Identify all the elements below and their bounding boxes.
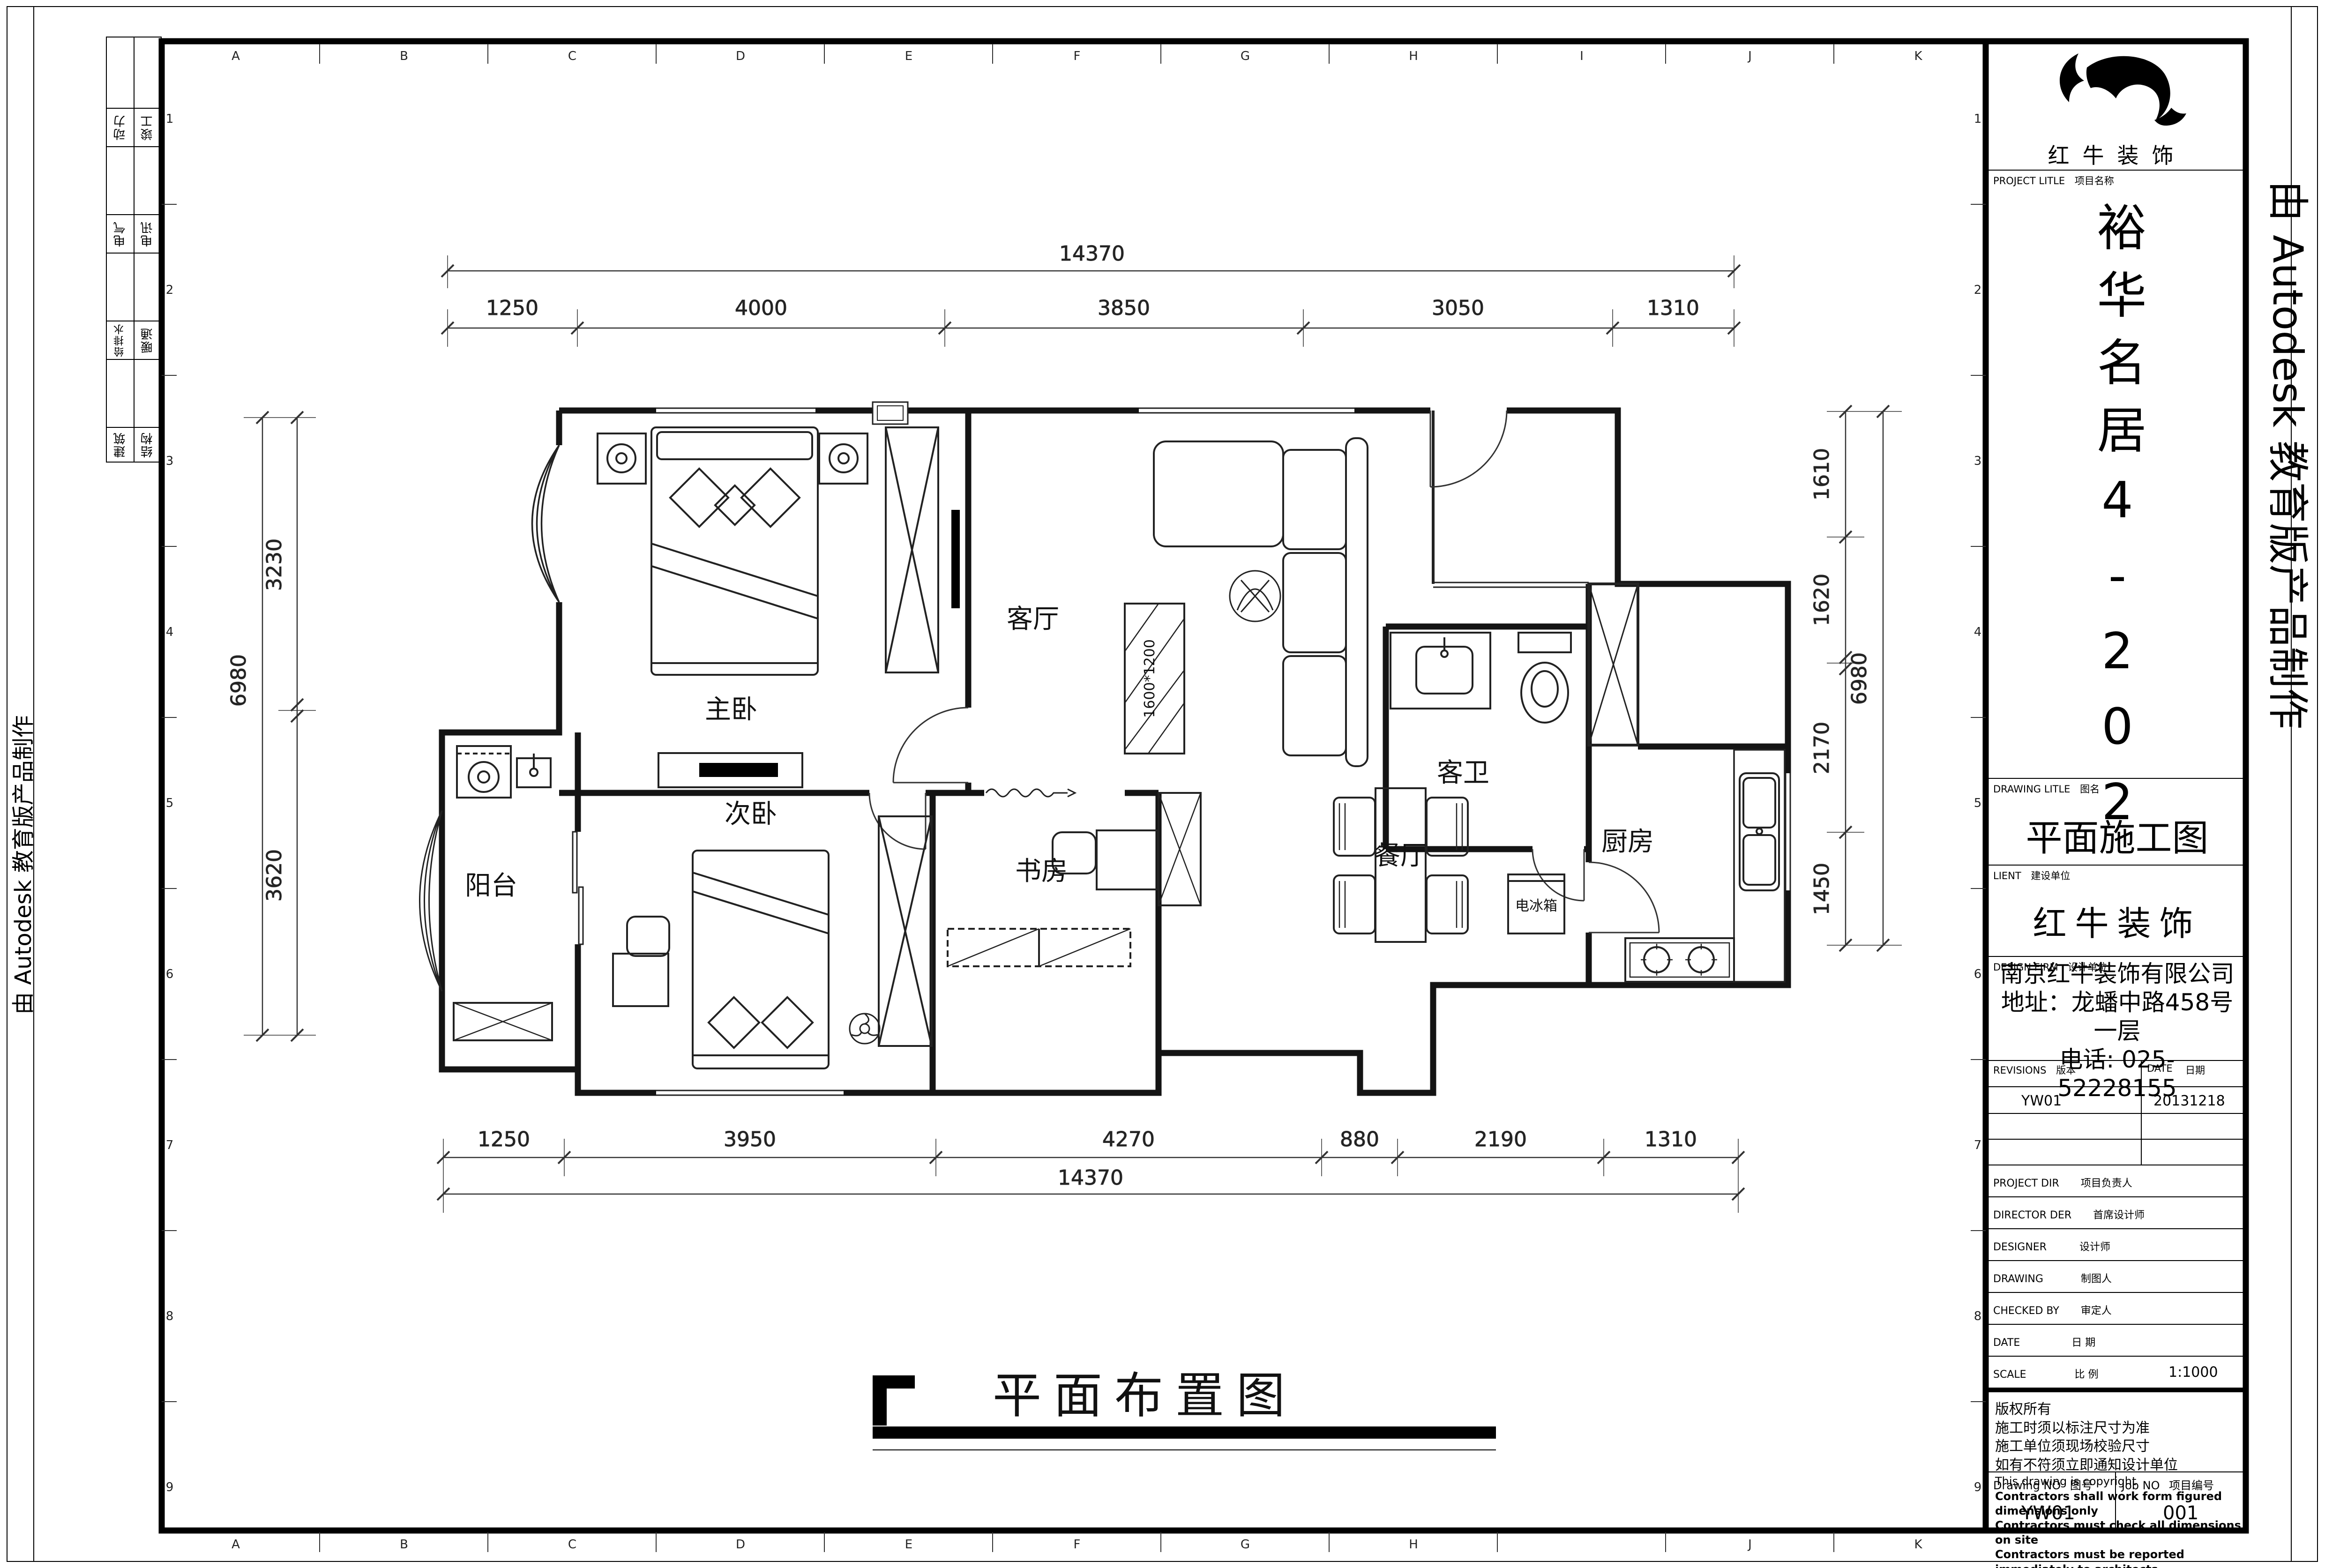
furniture	[454, 427, 1785, 1068]
grid-letter: B	[400, 1538, 408, 1552]
drawing-title: 平面施工图	[1989, 809, 2246, 861]
svg-text:3230: 3230	[262, 538, 286, 591]
room-label-balcony: 阳台	[465, 871, 517, 901]
wall-tv	[951, 510, 960, 608]
second-bed	[693, 851, 829, 1068]
svg-text:3050: 3050	[1432, 296, 1484, 320]
room-label-living: 客厅	[1007, 604, 1059, 635]
grid-number: 3	[166, 454, 174, 468]
grid-number: 8	[1974, 1309, 1982, 1323]
balcony-cabinet	[454, 1003, 552, 1040]
grid-letter: G	[1241, 1538, 1250, 1552]
grid-number: 6	[1974, 967, 1982, 981]
svg-text:1610: 1610	[1810, 448, 1834, 500]
grid-number: 7	[166, 1138, 174, 1152]
svg-text:1310: 1310	[1647, 296, 1699, 320]
brand-logo	[2040, 50, 2195, 139]
sheet-title-text: 平面布置图	[993, 1367, 1297, 1424]
grid-number: 3	[1974, 454, 1982, 468]
study-desk	[1053, 830, 1158, 889]
grid-number: 7	[1974, 1138, 1982, 1152]
grid-reference: A B C D E F G H I J K A B C D E F G H J …	[162, 44, 1986, 1552]
discipline-table: 动力 竣工 电气 电讯 给排水 暖通 建筑 结构	[106, 37, 162, 463]
company-name: 红牛装饰	[1989, 139, 2246, 170]
firm-phone: 电话: 025-52228155	[2000, 1045, 2235, 1103]
grid-number: 5	[1974, 796, 1982, 810]
discipline-label: 暖通	[139, 327, 156, 353]
svg-text:4270: 4270	[1102, 1127, 1155, 1151]
discipline-label: 竣工	[139, 114, 156, 141]
dimension-top: 14370 1250 4000 3850 3050 1310	[441, 242, 1740, 347]
second-wardrobe	[879, 816, 932, 1046]
room-label-dining: 餐厅	[1374, 841, 1427, 871]
discipline-label: 给排水	[112, 323, 127, 357]
autodesk-watermark-left: 由 Autodesk 教育版产品制作	[5, 593, 37, 1015]
discipline-label: 建筑	[112, 432, 129, 458]
grid-number: 4	[166, 625, 174, 639]
grid-letter: B	[400, 49, 408, 63]
copyright-line: 版权所有	[1995, 1400, 2246, 1419]
grid-letter: K	[1914, 49, 1922, 63]
row-label-en: CHECKED BY	[1993, 1305, 2059, 1317]
windows-and-thin-walls	[420, 402, 1792, 1096]
copyright-line: Contractors must be reported immediately…	[1995, 1547, 2246, 1568]
client-label-cn: 建设单位	[2031, 870, 2070, 881]
balcony-sink	[517, 754, 551, 787]
discipline-label: 电气	[112, 221, 129, 247]
grid-number: 2	[1974, 283, 1982, 297]
grid-number: 4	[1974, 625, 1982, 639]
row-label-cn: 日 期	[2071, 1337, 2095, 1349]
project-label-en: PROJECT LITLE	[1993, 175, 2065, 187]
grid-number: 2	[166, 283, 174, 297]
grid-letter: C	[568, 49, 576, 63]
fan	[850, 1014, 880, 1044]
drawing-no-label-en: Drawing NO	[1993, 1479, 2061, 1492]
grid-letter: F	[1074, 1538, 1081, 1552]
svg-text:3950: 3950	[724, 1127, 776, 1151]
grid-letter: C	[568, 1538, 576, 1552]
grid-number: 8	[166, 1309, 174, 1323]
project-name: 裕华名居4-202	[2093, 202, 2142, 849]
grid-letter: A	[232, 49, 240, 63]
row-label-en: DESIGNER	[1993, 1241, 2047, 1253]
row-label-en: DIRECTOR DER	[1993, 1210, 2071, 1221]
dimension-bottom: 1250 3950 4270 880 2190 1310 14370	[437, 1127, 1744, 1213]
grid-letter: J	[1747, 49, 1752, 63]
toilet	[1518, 633, 1571, 723]
master-bed	[651, 427, 818, 675]
sheet-title: 平面布置图	[873, 1367, 1496, 1450]
discipline-label: 结构	[139, 432, 156, 458]
client-name: 红牛装饰	[1989, 896, 2246, 945]
svg-text:6980: 6980	[227, 654, 251, 707]
job-no-label-cn: 项目编号	[2169, 1479, 2214, 1492]
grid-letter: G	[1241, 49, 1250, 63]
svg-text:1250: 1250	[486, 296, 538, 320]
drawing-canvas: A B C D E F G H I J K A B C D E F G H J …	[0, 0, 2325, 1568]
grid-number: 9	[166, 1480, 174, 1494]
row-label-cn: 设计师	[2079, 1241, 2110, 1253]
title-block: 红牛装饰 PROJECT LITLE 项目名称 裕华名居4-202 DRAWIN…	[1989, 47, 2246, 1531]
grid-number: 6	[166, 967, 174, 981]
bath-vanity	[1391, 633, 1490, 709]
copyright-line: 施工时须以标注尺寸为准	[1995, 1419, 2246, 1438]
grid-letter: J	[1747, 1538, 1752, 1552]
svg-text:3620: 3620	[262, 849, 286, 902]
svg-text:3850: 3850	[1098, 296, 1150, 320]
discipline-label: 动力	[112, 114, 129, 141]
break-line	[986, 789, 1075, 797]
study-cabinet	[948, 929, 1130, 966]
kitchen-sink	[1740, 773, 1779, 890]
drawing-no-label-cn: 图号	[2070, 1479, 2093, 1492]
svg-text:1310: 1310	[1645, 1127, 1697, 1151]
hall-cabinet	[1159, 793, 1201, 905]
room-label-master: 主卧	[705, 694, 757, 725]
washing-machine	[457, 746, 511, 798]
grid-letter: A	[232, 1538, 240, 1552]
grid-letter: K	[1914, 1538, 1922, 1552]
row-label-en: DRAWING	[1993, 1273, 2043, 1285]
svg-text:1450: 1450	[1810, 863, 1834, 915]
row-label-en: DATE	[1993, 1337, 2020, 1349]
grid-letter: D	[736, 1538, 745, 1552]
row-label-cn: 制图人	[2081, 1273, 2112, 1285]
stove	[1625, 938, 1734, 982]
svg-text:14370: 14370	[1059, 242, 1125, 266]
grid-letter: F	[1074, 49, 1081, 63]
svg-text:1620: 1620	[1810, 574, 1834, 626]
floor-plan-walls	[442, 411, 1788, 1093]
row-label-cn: 审定人	[2081, 1305, 2112, 1317]
grid-letter: H	[1409, 1538, 1418, 1552]
svg-text:14370: 14370	[1058, 1166, 1123, 1190]
grid-number: 1	[166, 112, 174, 126]
kitchen-counter	[1734, 750, 1785, 982]
tv-cabinet	[658, 753, 802, 787]
sheet-frame	[7, 7, 2318, 1561]
cad-sheet: A B C D E F G H I J K A B C D E F G H J …	[0, 0, 2325, 1568]
room-label-kitchen: 厨房	[1601, 827, 1654, 857]
project-label-cn: 项目名称	[2075, 175, 2114, 187]
scale-value: 1:1000	[2168, 1364, 2218, 1381]
svg-text:4000: 4000	[735, 296, 787, 320]
grid-letter: E	[905, 49, 912, 63]
job-no-label-en: Job NO	[2122, 1479, 2160, 1492]
second-desk	[613, 917, 669, 1006]
firm-address: 地址：龙蟠中路458号一层	[2000, 988, 2235, 1045]
row-label-cn: 比 例	[2075, 1369, 2099, 1381]
svg-text:2190: 2190	[1474, 1127, 1527, 1151]
firm-name: 南京红牛装饰有限公司	[2000, 960, 2235, 988]
grid-letter: D	[736, 49, 745, 63]
room-label-second: 次卧	[725, 799, 777, 829]
dimension-left: 3230 3620 6980	[227, 411, 316, 1041]
grid-number: 9	[1974, 1480, 1982, 1494]
room-label-bath: 客卫	[1437, 758, 1489, 788]
grid-number: 5	[166, 796, 174, 810]
row-label-cn: 项目负责人	[2081, 1178, 2132, 1189]
coffee-table-size-label: 1600*1200	[1142, 639, 1158, 718]
grid-letter: E	[905, 1538, 912, 1552]
room-labels: 主卧 客厅 客卫 厨房 餐厅 书房 次卧 阳台 电冰箱 1600*1200	[465, 604, 1654, 914]
dimension-right: 1610 1620 2170 1450 6980	[1810, 405, 1902, 951]
job-no-value: 001	[2163, 1502, 2198, 1524]
svg-text:2170: 2170	[1810, 722, 1834, 774]
grid-number: 1	[1974, 112, 1982, 126]
drawing-no-value: YW01	[2021, 1502, 2075, 1524]
autodesk-watermark-right: 由 Autodesk 教育版产品制作	[2261, 180, 2321, 1118]
svg-text:880: 880	[1340, 1127, 1379, 1151]
master-wardrobe	[886, 427, 938, 672]
plant	[1230, 571, 1280, 621]
row-label-en: PROJECT DIR	[1993, 1178, 2059, 1189]
copyright-line: 施工单位须现场校验尺寸	[1995, 1437, 2246, 1456]
row-label-en: SCALE	[1993, 1369, 2026, 1381]
svg-text:1250: 1250	[478, 1127, 530, 1151]
row-label-cn: 首席设计师	[2093, 1210, 2145, 1221]
drawing-label-cn: 图名	[2080, 784, 2100, 795]
grid-letter: I	[1580, 49, 1584, 63]
svg-text:6980: 6980	[1847, 652, 1871, 705]
discipline-label: 电讯	[139, 221, 156, 247]
grid-letter: H	[1409, 49, 1418, 63]
room-label-study: 书房	[1015, 856, 1068, 887]
drawing-label-en: DRAWING LITLE	[1993, 784, 2070, 795]
client-label-en: LIENT	[1993, 870, 2021, 881]
fridge-label: 电冰箱	[1515, 898, 1557, 914]
